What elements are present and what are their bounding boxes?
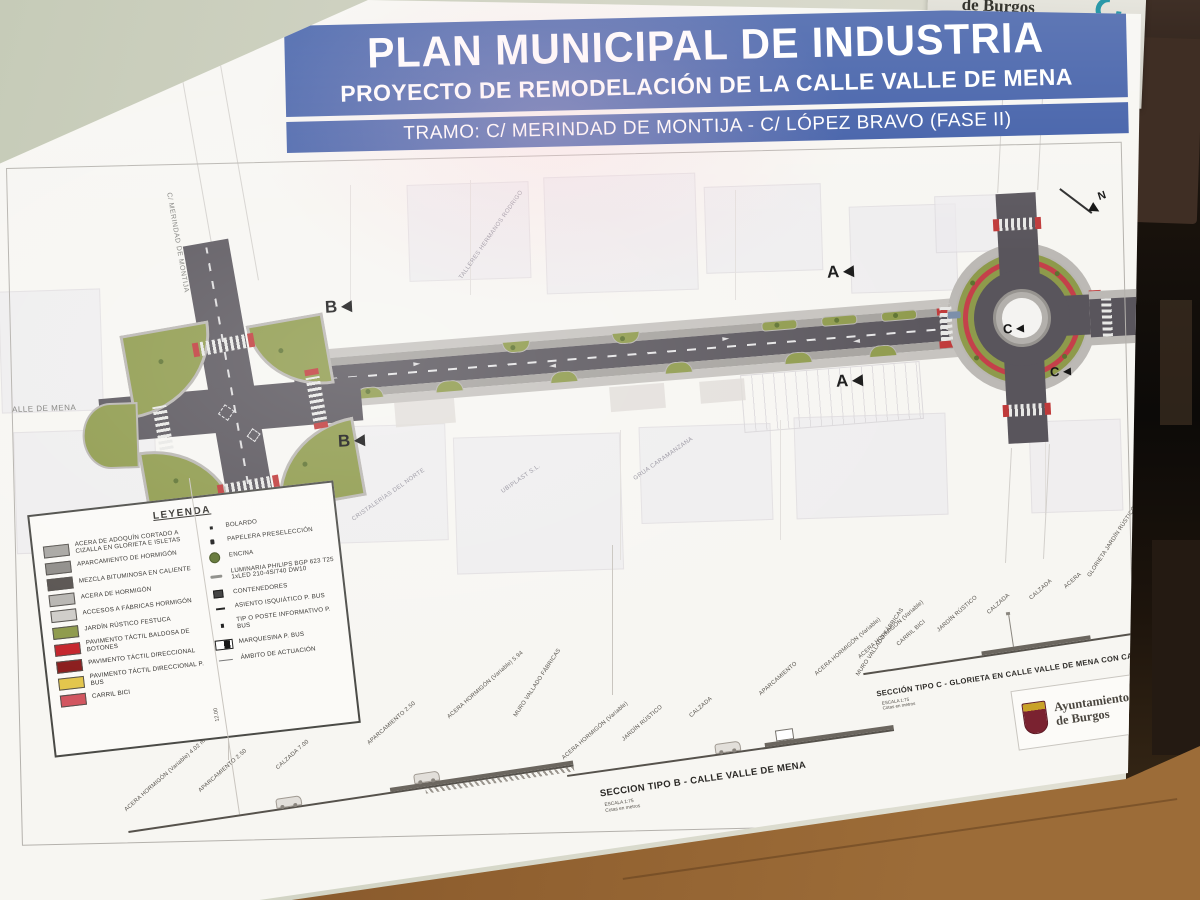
furniture (1152, 540, 1200, 755)
ayuntamiento-label: Ayuntamiento de Burgos (1053, 691, 1132, 729)
plan-frame (6, 142, 1138, 846)
furniture (1160, 300, 1192, 425)
presentation-board: TALLERES HERMANOS RODRIGO CRISTALERÍAS D… (0, 0, 1200, 900)
photo-scene: de Burgos www.aytoburgos.es BUR GOS (0, 0, 1200, 900)
burgos-shield-icon (1021, 700, 1049, 735)
title-block: PLAN MUNICIPAL DE INDUSTRIA PROYECTO DE … (284, 6, 1128, 117)
title-bar: PLAN MUNICIPAL DE INDUSTRIA PROYECTO DE … (284, 6, 1129, 153)
